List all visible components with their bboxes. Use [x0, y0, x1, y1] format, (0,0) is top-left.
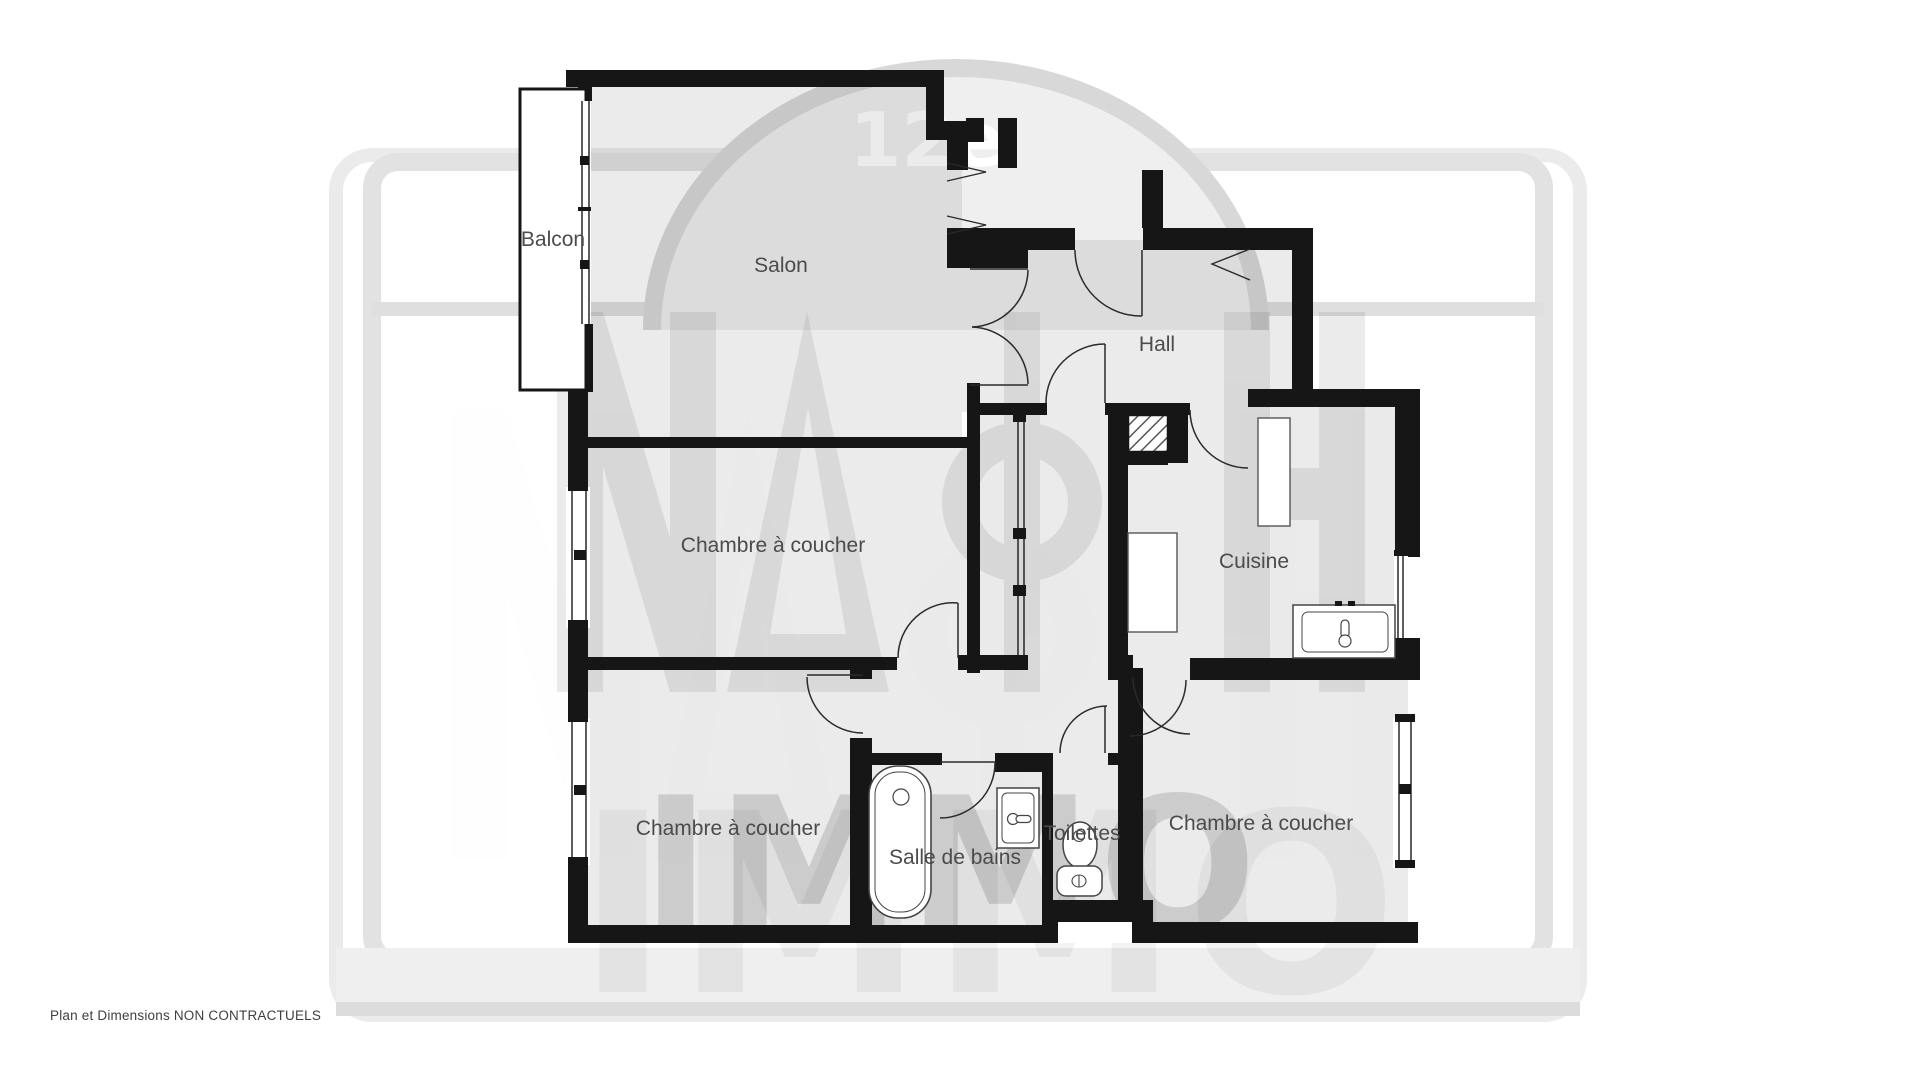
window-bedroom-middle	[566, 483, 590, 628]
wall-left	[568, 385, 588, 487]
room-label-hall: Hall	[1139, 333, 1175, 356]
window-bedroom-bottom-left	[566, 714, 590, 865]
wall	[926, 121, 968, 140]
window-balcony	[578, 101, 591, 324]
wall-top	[566, 70, 944, 87]
wall-bath-top	[850, 753, 942, 765]
wall-stub	[966, 118, 984, 142]
wall-right	[1395, 407, 1420, 557]
wall-hall-right	[1292, 250, 1313, 392]
bathtub-icon	[869, 766, 931, 918]
wall-kitchen-shoulder	[1248, 389, 1420, 407]
window-kitchen	[1394, 550, 1408, 644]
floorplan-canvas: IMMO IMMO 12e	[0, 0, 1920, 1080]
kitchen-fridge	[1128, 533, 1177, 632]
plan-disclaimer: Plan et Dimensions NON CONTRACTUELS	[50, 1008, 321, 1023]
wall-left	[568, 628, 588, 720]
wall-stub	[1142, 170, 1163, 228]
wall-bedroom-right	[967, 383, 980, 673]
wall-duct-side	[1168, 415, 1188, 463]
wall	[1118, 668, 1143, 760]
room-label-cuisine: Cuisine	[1219, 550, 1289, 573]
room-label-bedroom-left: Chambre à coucher	[636, 817, 820, 840]
kitchen-sink-icon	[1293, 601, 1395, 658]
washbasin-icon	[997, 788, 1039, 848]
wall-kitchen-left	[1108, 415, 1128, 660]
room-label-balcon: Balcon	[521, 228, 585, 251]
room-label-bedroom-middle: Chambre à coucher	[681, 534, 865, 557]
room-label-salle-de-bains: Salle de bains	[889, 846, 1021, 869]
duct-shaft-hatched	[1128, 415, 1168, 452]
kitchen-counter	[1258, 418, 1290, 526]
wall-kitchen-bottom	[1190, 658, 1420, 680]
wall	[958, 655, 1028, 670]
wall-corridor-top	[975, 403, 1047, 415]
wall-entry	[1143, 228, 1313, 250]
wall	[947, 228, 1028, 268]
room-label-bedroom-right: Chambre à coucher	[1169, 812, 1353, 835]
room-label-toilettes: Toilettes	[1043, 822, 1120, 845]
wall-stub	[998, 118, 1017, 168]
room-label-salon: Salon	[754, 254, 808, 277]
floorplan-page: IMMO IMMO 12e	[0, 0, 1920, 1080]
wall	[1036, 753, 1053, 765]
wall	[1028, 228, 1075, 250]
wall-toilet-bottom	[1043, 900, 1153, 925]
wall-recess	[1058, 922, 1132, 943]
wall-bottom-right	[1143, 922, 1418, 943]
window-bedroom-bottom-right	[1393, 714, 1417, 868]
wall-bedrooms-divider	[568, 657, 862, 670]
wall-salon-bedroom	[568, 437, 967, 448]
wall-kitchen-top	[1105, 403, 1190, 415]
